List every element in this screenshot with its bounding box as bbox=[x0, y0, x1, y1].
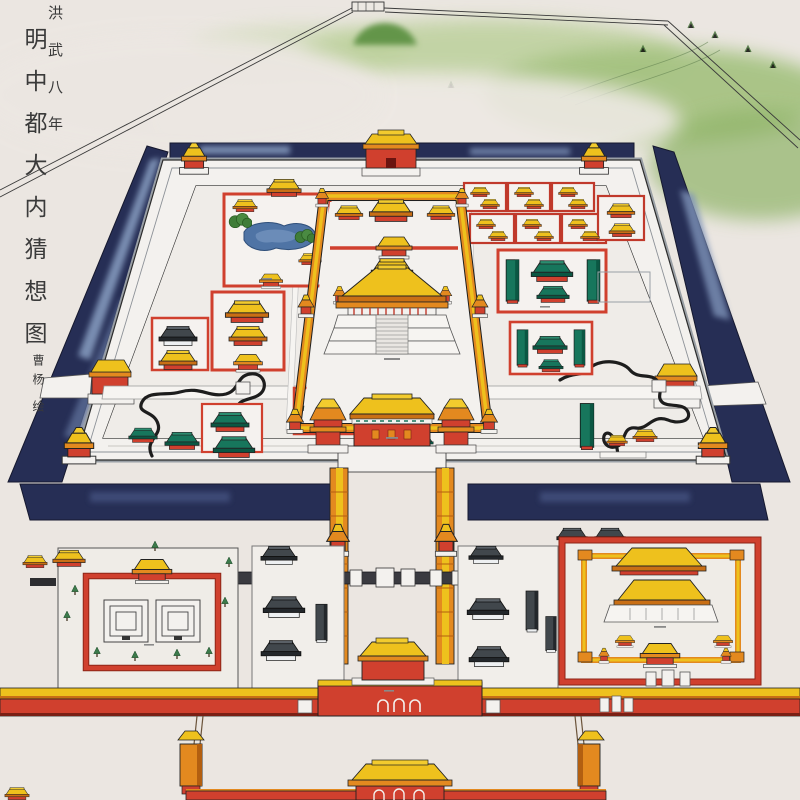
artist-signature-verb: 绘 bbox=[30, 400, 47, 412]
east-green-courtyard-north bbox=[498, 250, 606, 312]
north-gate bbox=[362, 130, 420, 176]
outer-city-gate bbox=[352, 2, 384, 11]
altar-east bbox=[156, 600, 200, 642]
caption-dash bbox=[384, 358, 400, 360]
axial-corridor-east bbox=[436, 468, 454, 664]
artist-signature: 曹杨 bbox=[30, 354, 47, 392]
dark-plot bbox=[30, 578, 56, 586]
gray-courtyard-east bbox=[458, 546, 558, 694]
midwest-courtyard bbox=[212, 292, 284, 372]
terrace-stairs bbox=[376, 315, 408, 354]
stream-bridge-east bbox=[652, 380, 666, 392]
ancestral-temple bbox=[562, 540, 758, 686]
temple-inner-gate bbox=[640, 644, 680, 668]
temple-platform bbox=[604, 605, 718, 622]
main-hall-lower-eave bbox=[336, 302, 448, 308]
painting-ming-zhongdu-palace: 洪武八年 明中都大内猜想图 曹杨 绘 bbox=[0, 0, 800, 800]
stream-bridge-west bbox=[236, 382, 250, 394]
gray-courtyard-west bbox=[252, 546, 344, 694]
altar-west bbox=[104, 600, 148, 642]
painting-title: 明中都大内猜想图 bbox=[16, 27, 50, 363]
altar-gate bbox=[132, 560, 172, 584]
west-courtyard bbox=[152, 318, 208, 370]
temple-south-gate-posts bbox=[646, 670, 690, 686]
west-moat-bridge bbox=[40, 374, 92, 398]
east-green-courtyard-south bbox=[510, 322, 592, 374]
palace-illustration bbox=[0, 0, 800, 800]
